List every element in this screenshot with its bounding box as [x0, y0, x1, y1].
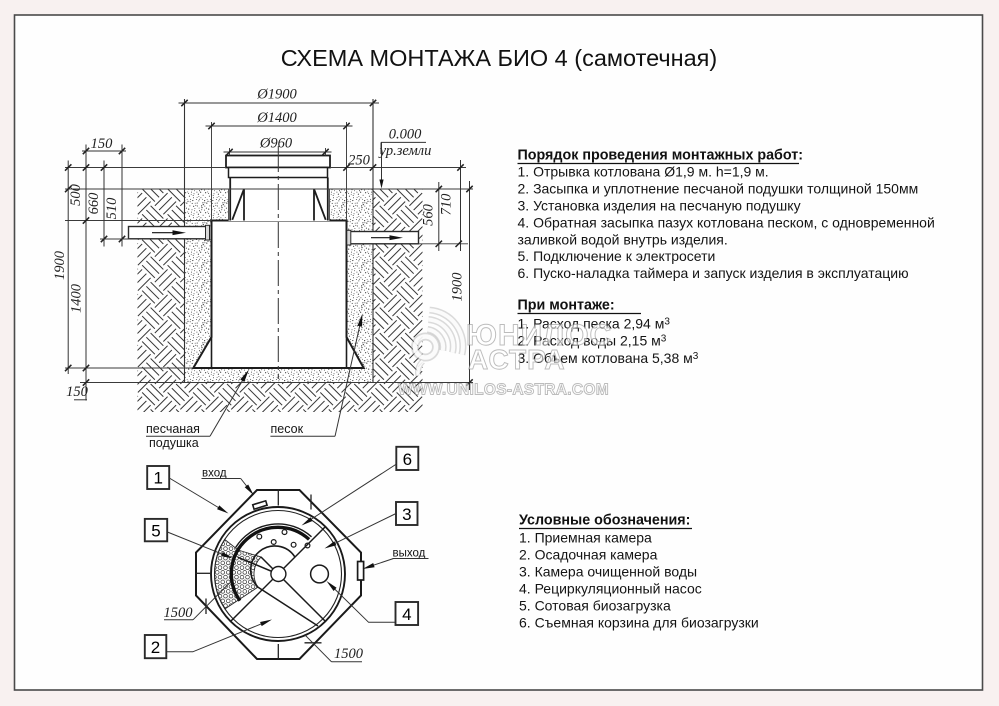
svg-text:5. Подключение к электросети: 5. Подключение к электросети	[518, 248, 716, 264]
svg-text:2: 2	[151, 638, 160, 657]
svg-text:0.000: 0.000	[389, 127, 422, 143]
svg-text:5. Сотовая биозагрузка: 5. Сотовая биозагрузка	[519, 598, 671, 614]
svg-text:Условные обозначения:: Условные обозначения:	[519, 513, 690, 529]
svg-text:250: 250	[348, 153, 371, 169]
svg-text:150: 150	[66, 384, 89, 400]
svg-text:1. Приемная камера: 1. Приемная камера	[519, 530, 652, 546]
svg-text:2. Осадочная камера: 2. Осадочная камера	[519, 547, 658, 563]
svg-text:150: 150	[91, 136, 114, 152]
svg-text:710: 710	[439, 193, 455, 216]
svg-text:1900: 1900	[450, 272, 466, 302]
svg-text:4. Обратная засыпка пазух котл: 4. Обратная засыпка пазух котлована песк…	[518, 215, 935, 231]
svg-text:АСТРА: АСТРА	[468, 344, 566, 375]
svg-text:1400: 1400	[69, 283, 85, 313]
svg-text:500: 500	[68, 183, 84, 206]
svg-text:560: 560	[421, 203, 437, 226]
svg-text:6: 6	[403, 450, 412, 469]
svg-text:660: 660	[86, 192, 102, 215]
svg-text:Ø1900: Ø1900	[256, 87, 297, 103]
svg-text:Ø960: Ø960	[259, 136, 293, 152]
svg-text:WWW.UNILOS-ASTRA.COM: WWW.UNILOS-ASTRA.COM	[398, 382, 609, 399]
svg-text:510: 510	[104, 197, 120, 220]
svg-text:1500: 1500	[334, 646, 364, 662]
svg-text:песок: песок	[271, 422, 304, 436]
svg-text:песчаная: песчаная	[146, 422, 200, 436]
svg-text:Ø1400: Ø1400	[256, 110, 297, 126]
svg-text:3: 3	[402, 505, 411, 524]
svg-text:заливкой водой внутрь изделия.: заливкой водой внутрь изделия.	[518, 232, 728, 248]
svg-text:При монтаже:: При монтаже:	[518, 298, 615, 314]
svg-text:СХЕМА МОНТАЖА БИО 4 (самотечна: СХЕМА МОНТАЖА БИО 4 (самотечная)	[281, 45, 717, 71]
svg-text:ур.земли: ур.земли	[378, 143, 432, 159]
svg-text:вход: вход	[202, 468, 227, 480]
svg-text:2. Засыпка и уплотнение песчан: 2. Засыпка и уплотнение песчаной подушки…	[518, 181, 919, 197]
svg-text:3. Камера очищенной воды: 3. Камера очищенной воды	[519, 564, 697, 580]
svg-text:6. Пуско-наладка таймера и зап: 6. Пуско-наладка таймера и запуск издели…	[518, 265, 909, 281]
svg-text:4. Рециркуляционный насос: 4. Рециркуляционный насос	[519, 581, 702, 597]
svg-text:1900: 1900	[52, 250, 68, 280]
svg-text:подушка: подушка	[149, 436, 199, 450]
svg-text:1: 1	[153, 469, 162, 488]
svg-text:6. Съемная корзина для биозагр: 6. Съемная корзина для биозагрузки	[519, 615, 759, 631]
svg-text:3. Установка изделия на песчан: 3. Установка изделия на песчаную подушку	[518, 198, 801, 214]
svg-text:Порядок проведения монтажных р: Порядок проведения монтажных работ:	[518, 148, 804, 164]
svg-text:4: 4	[402, 605, 411, 624]
svg-text:1500: 1500	[164, 605, 194, 621]
svg-text:выход: выход	[393, 548, 426, 560]
svg-text:1. Отрывка котлована Ø1,9 м. h: 1. Отрывка котлована Ø1,9 м. h=1,9 м.	[518, 164, 769, 180]
svg-text:5: 5	[151, 521, 160, 540]
